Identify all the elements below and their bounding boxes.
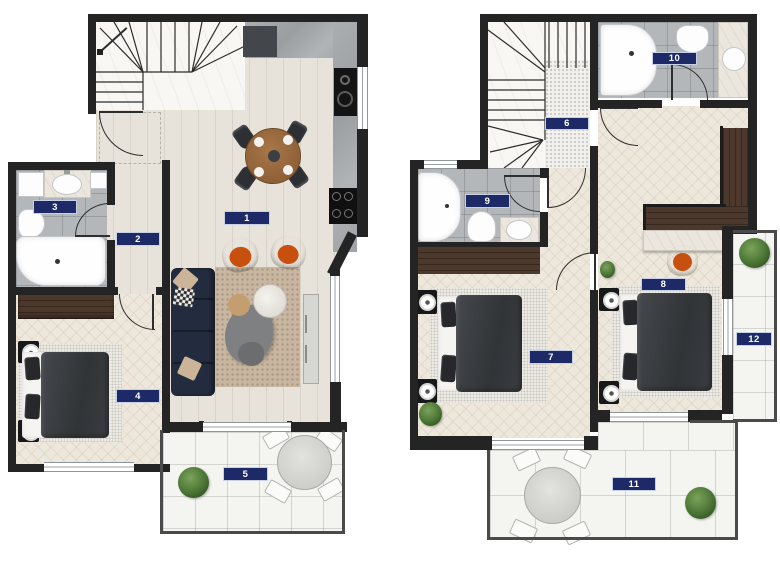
- wall: [8, 287, 118, 295]
- bathroom-9-door-leaf: [504, 175, 540, 177]
- wall: [88, 14, 357, 22]
- bed-pillow: [440, 355, 457, 383]
- room-label-3: 3: [33, 200, 77, 214]
- room-label-8: 8: [641, 278, 686, 291]
- staircase-2: [488, 22, 590, 168]
- wall: [291, 422, 347, 432]
- hall-door-leaf: [99, 111, 143, 113]
- bedroom-4-window: [44, 462, 134, 472]
- plate-icon: [283, 165, 293, 175]
- drain-icon: [55, 259, 60, 264]
- wardrobe-trim: [643, 204, 646, 232]
- bedroom-8-window: [610, 412, 688, 422]
- terrace-wall: [487, 450, 490, 540]
- plate-icon: [283, 135, 293, 145]
- cooktop: [329, 188, 357, 224]
- room-label-2: 2: [116, 232, 160, 246]
- wall: [590, 146, 598, 254]
- burner-icon: [332, 192, 341, 201]
- balcony-sliding-door: [203, 422, 291, 432]
- wall: [540, 168, 548, 178]
- wall: [357, 14, 368, 67]
- lamp-icon: [419, 294, 436, 311]
- lamp-icon: [419, 383, 436, 400]
- console-handle: [305, 345, 307, 363]
- fridge-cabinet: [243, 26, 277, 57]
- terrace-wall: [690, 420, 738, 423]
- burner-icon: [332, 209, 341, 218]
- room-label-12: 12: [736, 332, 772, 346]
- toilet: [676, 25, 709, 53]
- balcony-wall: [342, 430, 345, 534]
- terrace-wall: [735, 420, 738, 540]
- wall: [8, 464, 44, 472]
- room-label-11: 11: [612, 477, 656, 491]
- side-table-marble: [253, 284, 287, 318]
- living-window: [330, 276, 340, 382]
- bed-pillow: [24, 394, 40, 420]
- bathtub: [16, 236, 106, 286]
- balcony-wall: [160, 430, 163, 534]
- balcony-12-wall: [733, 419, 777, 422]
- sink-basin: [52, 174, 82, 195]
- bed-duvet: [637, 293, 712, 391]
- desk-chair-seat: [673, 253, 692, 271]
- room-label-7: 7: [529, 350, 573, 364]
- terrace-wall: [487, 537, 738, 540]
- bathroom-cabinet: [18, 172, 44, 197]
- wall: [598, 100, 662, 108]
- wall: [162, 160, 170, 433]
- room-label-6: 6: [545, 117, 589, 130]
- balcony-wall: [160, 531, 345, 534]
- room-label-1: 1: [224, 211, 270, 225]
- wardrobe: [18, 294, 114, 319]
- sofa-pillow-checkered: [173, 286, 196, 307]
- balcony-12-wall: [774, 230, 777, 422]
- burner-icon: [344, 209, 353, 218]
- wall: [8, 162, 16, 295]
- plate-icon: [254, 137, 264, 147]
- drain-icon: [445, 204, 449, 208]
- wall: [88, 14, 96, 114]
- wall: [590, 290, 598, 432]
- wall: [748, 14, 757, 108]
- wardrobe-trim: [643, 204, 726, 207]
- sink-basin: [506, 220, 532, 240]
- wall: [8, 162, 115, 170]
- wall: [584, 436, 598, 450]
- wall: [748, 108, 757, 234]
- wall: [722, 355, 733, 414]
- bathtub: [418, 172, 461, 242]
- pouf: [228, 294, 250, 316]
- bedroom-7-door-leaf: [594, 252, 596, 290]
- bed-pillow: [24, 357, 41, 381]
- sofa-cushion-line: [173, 330, 213, 332]
- wall: [8, 295, 16, 472]
- wall: [357, 129, 368, 237]
- wall: [134, 464, 170, 472]
- plant: [685, 487, 716, 519]
- toilet: [467, 211, 496, 242]
- lamp-icon: [603, 385, 620, 402]
- plant: [419, 402, 442, 426]
- wall: [540, 212, 548, 246]
- armchair-seat: [228, 245, 254, 269]
- plate-icon: [254, 167, 264, 177]
- coffee-table-small: [238, 342, 264, 366]
- room-label-9: 9: [465, 194, 510, 208]
- wall: [590, 14, 598, 110]
- wall: [410, 436, 492, 450]
- entry-door-hinge: [97, 49, 103, 55]
- sink-basin-icon: [337, 91, 353, 107]
- balcony-12-wall: [733, 230, 777, 233]
- bathroom-3-door-leaf: [75, 235, 110, 237]
- floor-plan-canvas: 1 2 3 4 5: [0, 0, 780, 580]
- wardrobe: [418, 246, 540, 274]
- plant: [600, 261, 615, 278]
- room-label-4: 4: [116, 389, 160, 403]
- sink-basin: [722, 47, 746, 71]
- wall: [156, 287, 170, 295]
- bedroom-7-window: [492, 440, 584, 450]
- bedroom-4-door-leaf: [152, 294, 154, 330]
- bowl-icon: [268, 150, 280, 162]
- lamp-icon: [603, 292, 620, 309]
- faucet-icon: [340, 75, 350, 85]
- balcony-12-door: [723, 299, 733, 355]
- bathtub: [600, 24, 657, 96]
- bathroom-10-door-leaf: [671, 64, 673, 100]
- wall: [722, 232, 733, 299]
- burner-icon: [344, 192, 353, 201]
- console-handle: [305, 315, 307, 333]
- tv-console: [303, 294, 319, 384]
- wall: [598, 410, 610, 422]
- desk-chair-orange: [667, 245, 698, 276]
- wall: [107, 170, 115, 205]
- wall: [410, 242, 548, 247]
- terrace-11-floor: [598, 422, 735, 450]
- room-label-5: 5: [223, 467, 268, 481]
- bed-pillow: [440, 302, 456, 328]
- drain-icon: [629, 51, 634, 56]
- bed-duvet: [41, 352, 109, 438]
- bed-duvet: [456, 295, 522, 392]
- wall: [480, 14, 757, 22]
- kitchen-window: [357, 67, 368, 129]
- wall: [480, 14, 488, 164]
- balcony-table: [277, 435, 332, 490]
- wall: [457, 160, 488, 169]
- plant: [178, 467, 209, 498]
- wall: [410, 160, 418, 450]
- dining-table: [245, 128, 301, 184]
- kitchen-sink: [334, 68, 357, 116]
- wall: [700, 100, 757, 108]
- armchair-seat: [276, 243, 300, 265]
- bathroom-9-window: [424, 160, 457, 169]
- terrace-table: [524, 467, 581, 524]
- bathroom-niche: [90, 172, 107, 189]
- room-label-10: 10: [652, 52, 697, 65]
- plant: [739, 238, 770, 268]
